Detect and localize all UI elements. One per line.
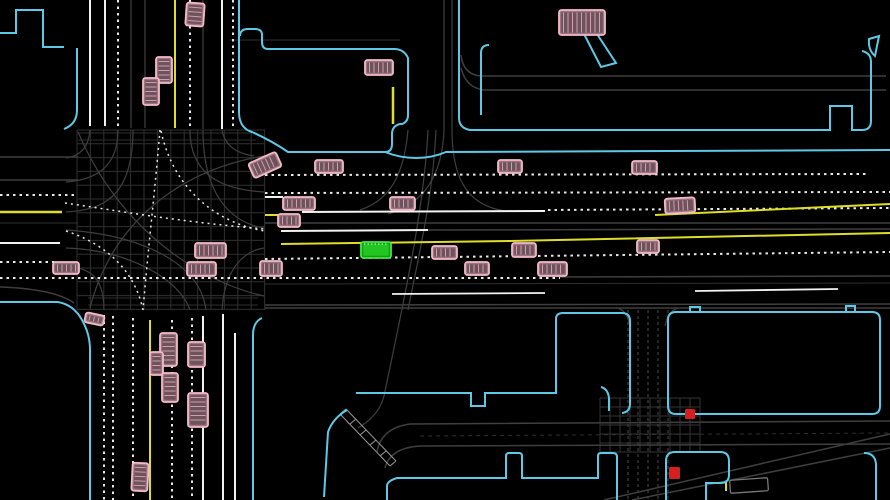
road-path-gray — [428, 229, 890, 230]
ghost-vehicle — [730, 478, 769, 494]
vehicle — [559, 10, 605, 35]
road-path-dotted — [548, 208, 890, 210]
vehicle — [84, 312, 105, 326]
road-path-gray — [0, 287, 74, 303]
road-path-curb — [0, 10, 64, 47]
road-path-dotted — [161, 131, 265, 231]
road-path-dotted — [265, 192, 890, 193]
vehicle — [512, 243, 536, 257]
traffic-signal-red — [685, 409, 695, 419]
vehicle — [632, 161, 657, 174]
road-path-curb — [253, 318, 262, 500]
road-path-white — [302, 211, 545, 212]
road-path-white — [281, 230, 428, 231]
vehicle — [188, 393, 208, 427]
road-path-curb — [0, 302, 90, 500]
vehicle — [187, 262, 216, 276]
vehicle — [538, 262, 567, 276]
road-path-lightgray — [340, 409, 396, 466]
road-path-curb — [864, 453, 876, 500]
road-path-curb — [459, 0, 871, 130]
vehicle — [390, 197, 415, 210]
road-path-gray — [560, 276, 890, 277]
vehicle — [260, 261, 282, 276]
road-path-gray — [265, 304, 890, 305]
road-path-curb — [387, 453, 617, 500]
vehicle — [665, 197, 696, 214]
vehicle — [131, 463, 148, 492]
road-path-dotted — [265, 174, 868, 175]
vehicle — [283, 197, 315, 210]
vehicle — [465, 262, 489, 275]
road-path-gray — [461, 68, 886, 90]
vehicle — [637, 240, 659, 253]
road-path-gray — [452, 130, 505, 211]
road-path-curb — [869, 36, 879, 56]
bev-driving-scene — [0, 0, 890, 500]
road-path-curb — [324, 410, 347, 497]
road-path-dimgray — [420, 433, 890, 436]
vehicle — [498, 160, 522, 173]
lane-graph-grid — [600, 398, 700, 452]
road-path-gray — [461, 55, 886, 76]
road-path-curb — [239, 0, 408, 152]
vehicle — [365, 60, 393, 75]
road-path-gray — [665, 308, 678, 326]
map-canvas[interactable] — [0, 0, 890, 500]
road-path-curb — [584, 34, 616, 67]
road-path-gray — [377, 421, 890, 452]
road-path-curb — [64, 48, 77, 129]
vehicle — [53, 262, 79, 274]
road-path-curb — [481, 45, 489, 115]
road-path-dotted — [265, 252, 890, 259]
vehicle — [162, 373, 178, 402]
vehicle — [188, 342, 205, 367]
road-path-curb — [356, 313, 630, 413]
vehicle — [315, 160, 343, 173]
road-path-dimgray — [265, 283, 890, 284]
vehicle — [432, 246, 457, 259]
vehicle — [195, 243, 226, 258]
traffic-signal-red — [669, 467, 680, 479]
road-path-white — [392, 293, 545, 294]
vehicle — [143, 78, 159, 105]
vehicle — [185, 2, 205, 26]
vehicle — [150, 352, 163, 375]
vehicle — [278, 214, 300, 227]
road-path-curb — [385, 150, 890, 158]
ego-vehicle — [361, 242, 391, 258]
road-path-white — [695, 289, 838, 291]
